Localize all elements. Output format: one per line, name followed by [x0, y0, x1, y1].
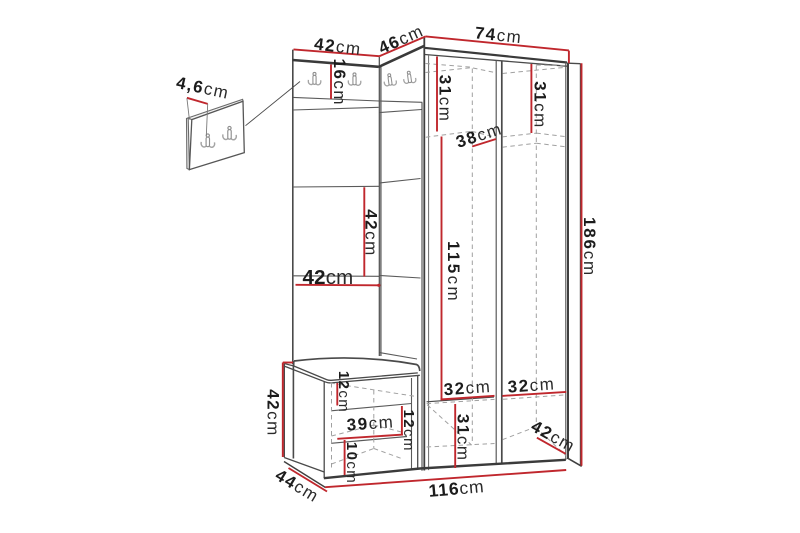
svg-text:31cm: 31cm: [436, 75, 455, 123]
svg-text:31cm: 31cm: [531, 81, 550, 129]
svg-text:12cm: 12cm: [336, 371, 353, 413]
svg-text:39cm: 39cm: [346, 412, 395, 434]
svg-text:32cm: 32cm: [507, 374, 556, 396]
svg-text:186cm: 186cm: [580, 217, 599, 277]
svg-text:32cm: 32cm: [443, 376, 492, 398]
svg-text:42cm: 42cm: [362, 209, 381, 257]
svg-text:10cm: 10cm: [344, 442, 361, 484]
svg-text:42cm: 42cm: [303, 266, 354, 289]
svg-text:12cm: 12cm: [401, 410, 418, 452]
svg-text:42cm: 42cm: [264, 389, 283, 437]
svg-text:31cm: 31cm: [454, 414, 473, 462]
svg-text:115cm: 115cm: [445, 241, 464, 303]
svg-text:16cm: 16cm: [330, 59, 349, 107]
